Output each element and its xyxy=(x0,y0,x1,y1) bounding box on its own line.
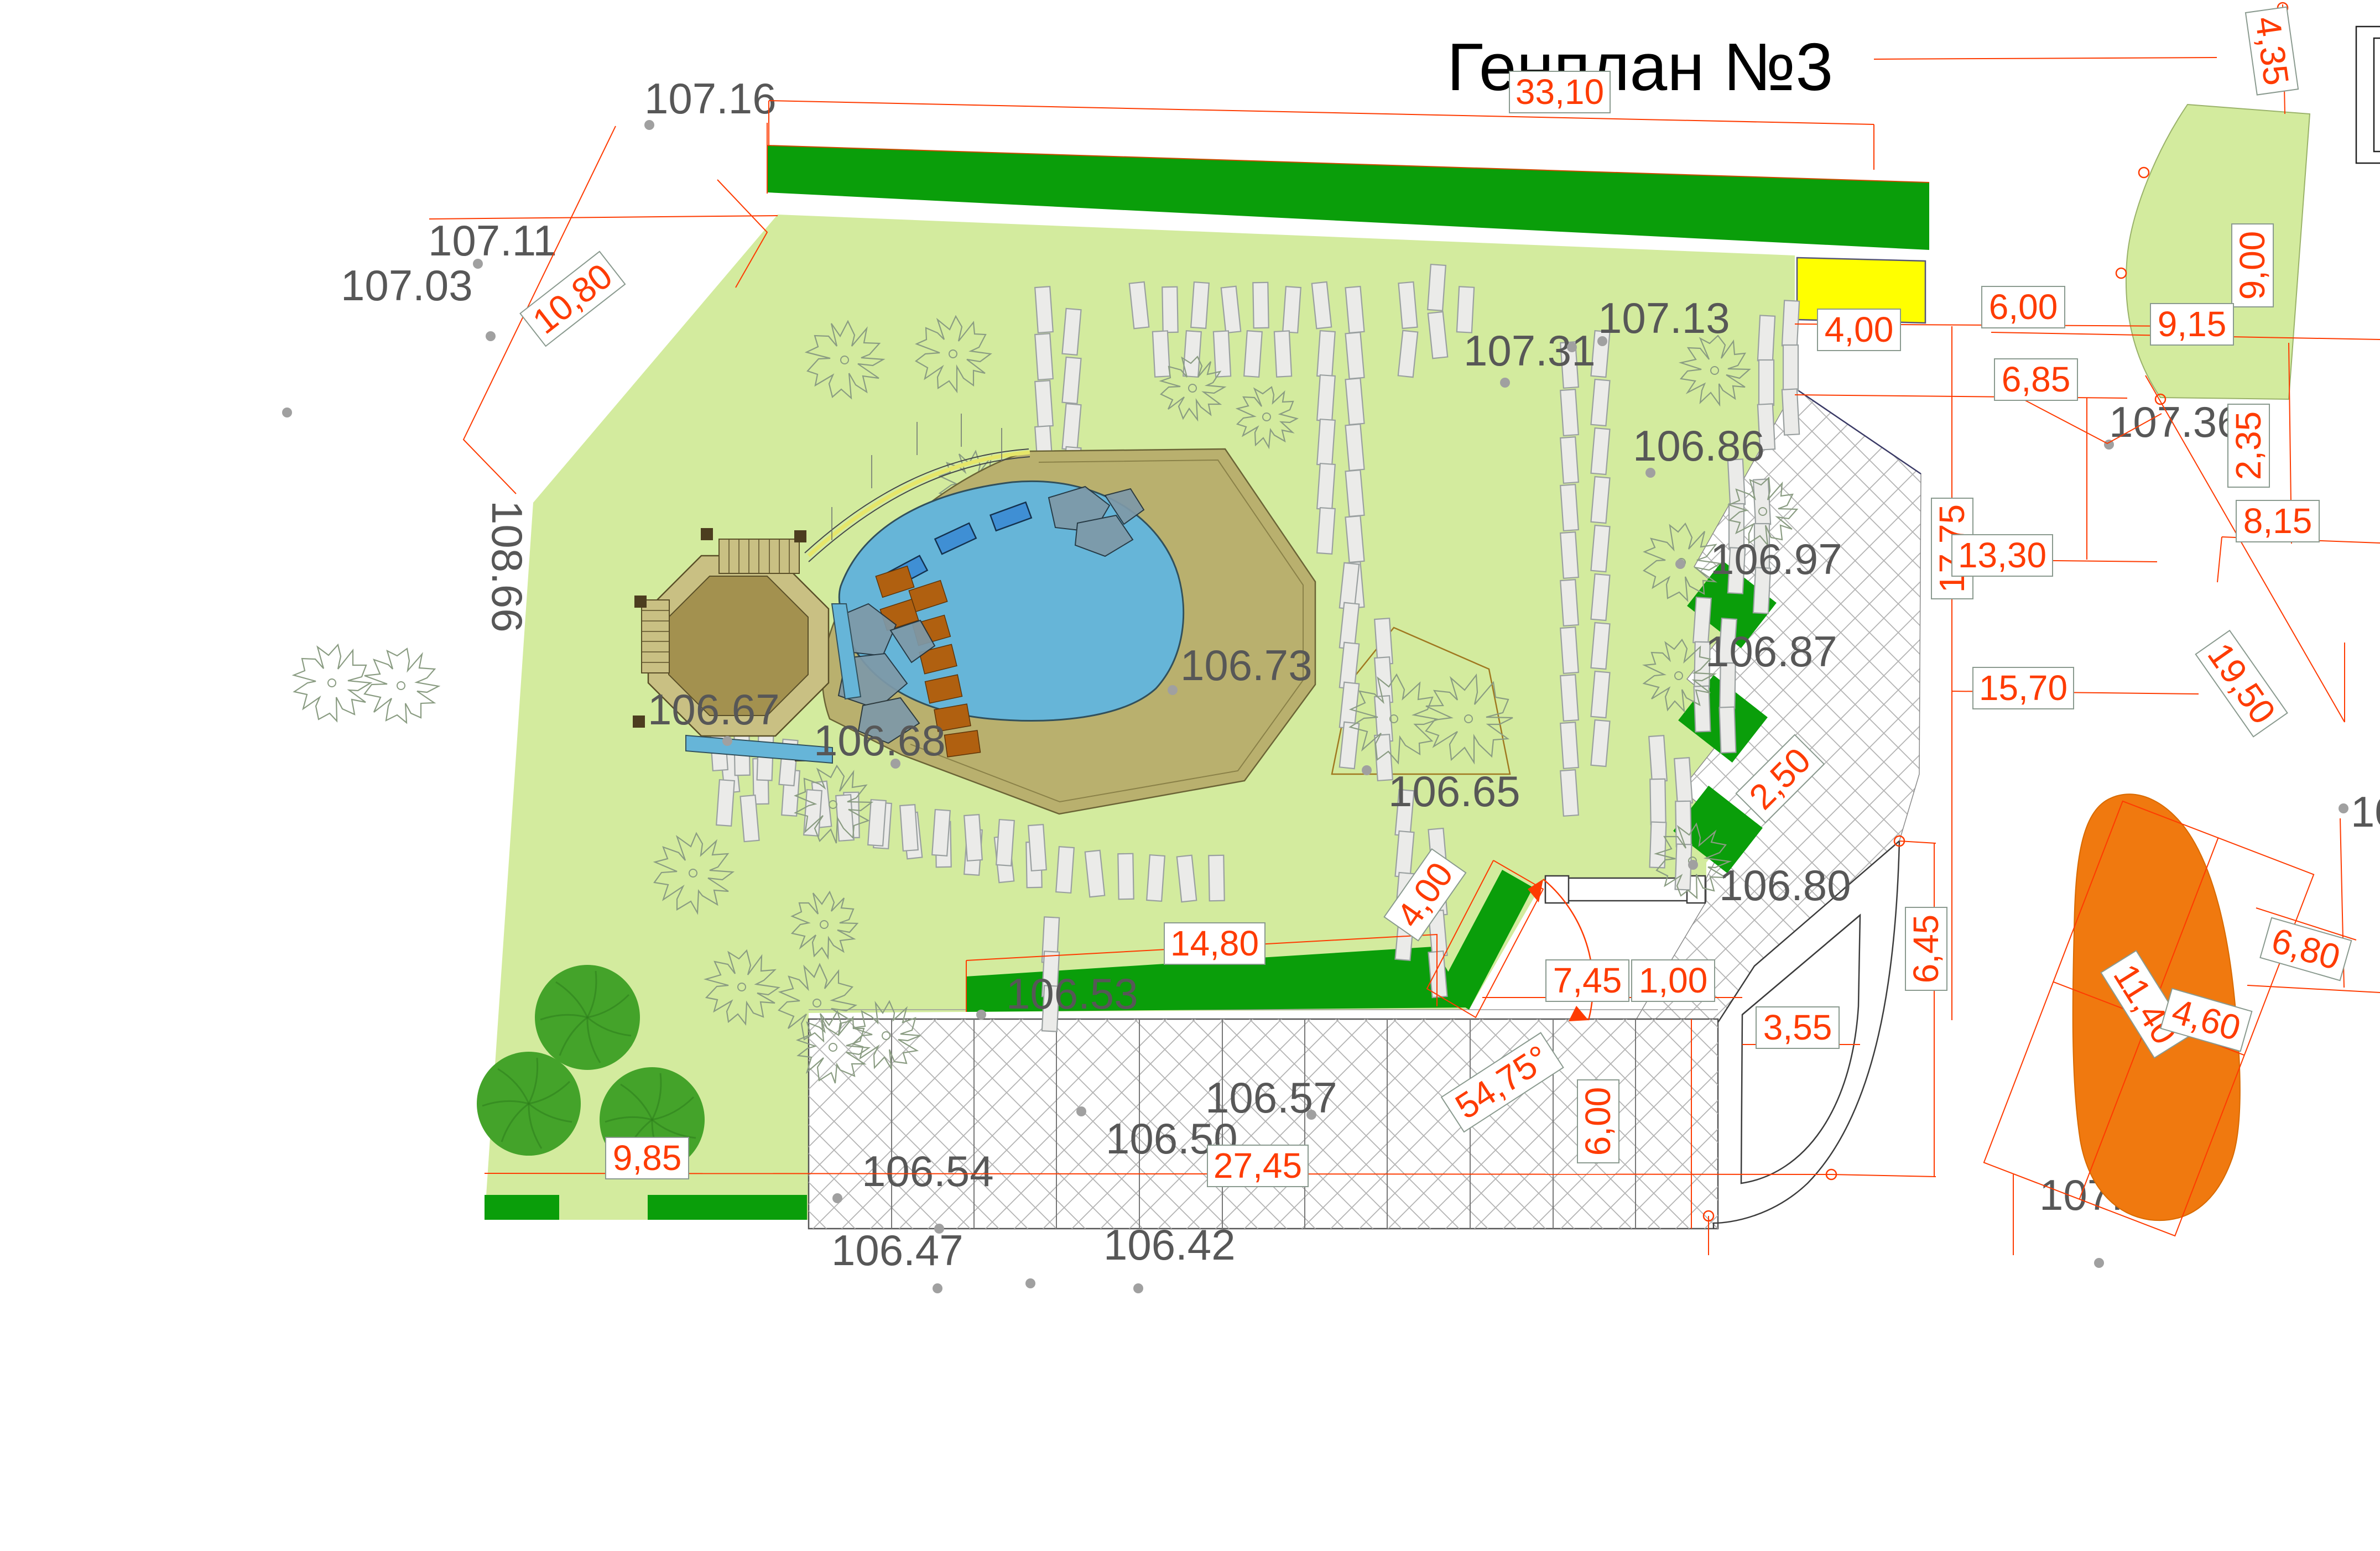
svg-text:1,00: 1,00 xyxy=(1639,960,1708,1000)
svg-text:107.03: 107.03 xyxy=(341,261,473,310)
svg-text:107.36: 107.36 xyxy=(2109,398,2241,446)
svg-text:106.87: 106.87 xyxy=(1705,627,1837,676)
svg-text:8,15: 8,15 xyxy=(2243,501,2313,541)
svg-text:14,80: 14,80 xyxy=(1170,923,1259,963)
svg-text:106.80: 106.80 xyxy=(1719,861,1851,910)
svg-text:107.13: 107.13 xyxy=(1598,294,1730,342)
svg-text:9,85: 9,85 xyxy=(613,1138,682,1178)
svg-text:13,30: 13,30 xyxy=(1958,535,2046,575)
svg-text:106.42: 106.42 xyxy=(1103,1220,1236,1269)
svg-text:106.53: 106.53 xyxy=(1006,969,1138,1018)
svg-text:Генплан №3: Генплан №3 xyxy=(1447,29,1833,105)
svg-text:107.16: 107.16 xyxy=(644,74,777,123)
svg-text:7,45: 7,45 xyxy=(1553,960,1622,1000)
svg-text:106.97: 106.97 xyxy=(1710,535,1842,583)
svg-text:106.65: 106.65 xyxy=(1388,767,1520,816)
svg-text:6,85: 6,85 xyxy=(2002,359,2071,399)
svg-text:33,10: 33,10 xyxy=(1516,72,1604,112)
svg-text:107.11: 107.11 xyxy=(428,216,557,265)
svg-text:106.86: 106.86 xyxy=(1633,421,1765,470)
svg-text:6,00: 6,00 xyxy=(1989,287,2058,327)
svg-text:15,70: 15,70 xyxy=(1979,668,2067,708)
svg-text:107.31: 107.31 xyxy=(1464,326,1596,375)
svg-text:4,00: 4,00 xyxy=(1825,310,1894,349)
svg-text:106.73: 106.73 xyxy=(1180,641,1313,690)
svg-text:6,00: 6,00 xyxy=(1578,1087,1618,1156)
svg-text:9,00: 9,00 xyxy=(2232,231,2272,300)
svg-text:6,45: 6,45 xyxy=(1906,915,1946,984)
svg-text:106.68: 106.68 xyxy=(814,716,946,765)
svg-text:106.54: 106.54 xyxy=(862,1147,994,1195)
svg-text:108.66: 108.66 xyxy=(483,500,532,633)
svg-text:2,35: 2,35 xyxy=(2228,411,2268,481)
svg-text:9,15: 9,15 xyxy=(2158,304,2227,344)
svg-text:106.47: 106.47 xyxy=(831,1226,964,1275)
svg-text:27,45: 27,45 xyxy=(1214,1146,1302,1186)
svg-text:106.67: 106.67 xyxy=(648,685,780,734)
svg-text:3,55: 3,55 xyxy=(1763,1007,1832,1047)
svg-text:107: 107 xyxy=(2351,787,2380,836)
